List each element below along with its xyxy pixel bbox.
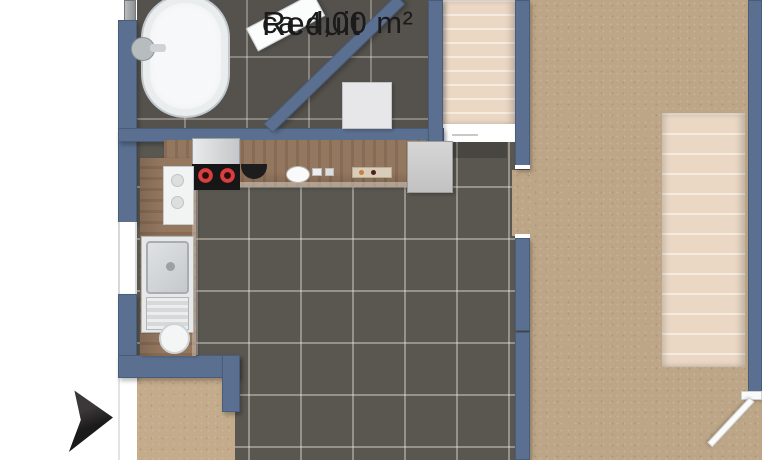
doorway-cap-south (515, 234, 530, 238)
counter-dish-small-2 (325, 168, 334, 176)
base-cabinet-knob-top (171, 174, 184, 187)
stove-burner-right (220, 168, 235, 183)
wall-outer-right (748, 0, 762, 398)
stair-landing (439, 124, 518, 142)
entrance-arrow-icon (67, 388, 113, 452)
spice-dot-orange (359, 170, 364, 175)
wall-entrance-corner (222, 355, 240, 412)
entrance-door-opening (118, 378, 137, 460)
sink-faucet (166, 262, 175, 271)
reduit-area-label: ca.4,00 m² (262, 2, 413, 44)
spice-dot-dark (371, 170, 376, 175)
wall-kitchen-east-lower (515, 332, 530, 460)
pipe (124, 0, 136, 21)
room-label-reduit: Reduit ca.4,00 m² (262, 2, 462, 94)
fridge (407, 141, 453, 193)
stove-burner-left (198, 168, 213, 183)
base-cabinet-knob-bottom (171, 196, 184, 209)
stair-landing-door-mark (452, 134, 478, 136)
window-left (118, 222, 137, 294)
entrance-hall-floor (135, 378, 235, 460)
doorway-cap-north (515, 165, 530, 169)
range-hood (192, 138, 240, 165)
doorway-threshold (512, 170, 535, 236)
bathtub (141, 0, 230, 118)
counter-white-bowl (286, 166, 310, 183)
floor-plan: Reduit ca.4,00 m² (0, 0, 762, 460)
understair-doorway-shadow (447, 142, 507, 158)
bathtub-faucet-spout (150, 44, 166, 52)
staircase-right (662, 113, 745, 367)
wall-stairwell-east (515, 0, 530, 169)
counter-dish-small (312, 168, 322, 176)
wall-kitchen-east-mid (515, 238, 530, 331)
counter-end-basin (159, 323, 190, 354)
